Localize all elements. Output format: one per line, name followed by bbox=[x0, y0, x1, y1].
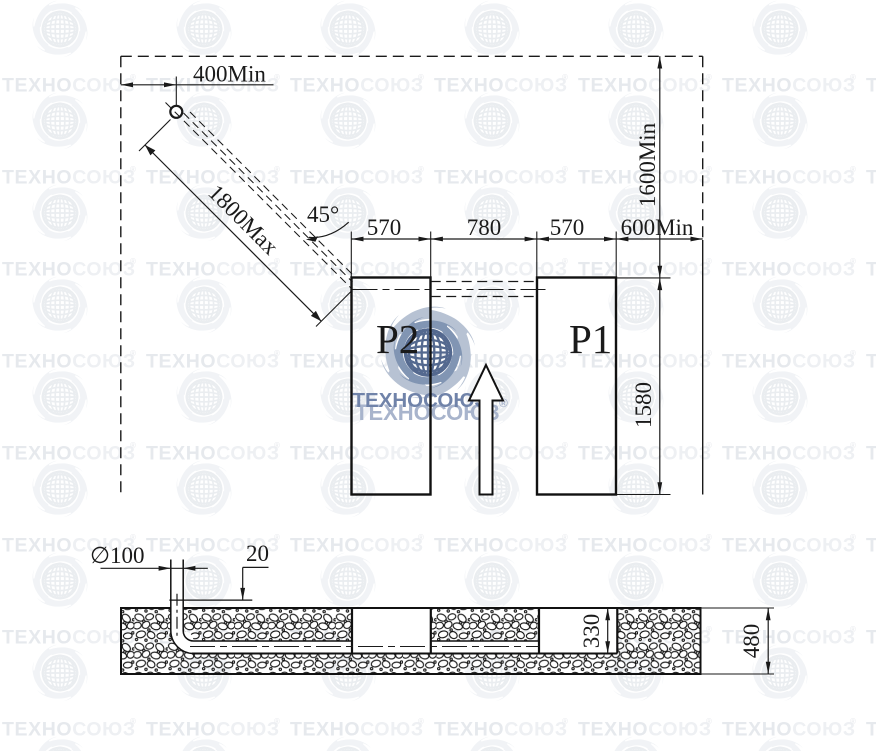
svg-text:570: 570 bbox=[550, 215, 585, 240]
svg-text:330: 330 bbox=[579, 614, 604, 649]
svg-text:1580: 1580 bbox=[631, 382, 656, 428]
svg-text:ТЕХНОСОЮЗ: ТЕХНОСОЮЗ bbox=[353, 389, 488, 412]
svg-text:P1: P1 bbox=[569, 316, 612, 362]
svg-text:480: 480 bbox=[739, 624, 764, 659]
svg-text:400Min: 400Min bbox=[193, 62, 266, 87]
svg-text:45°: 45° bbox=[307, 202, 339, 227]
svg-text:20: 20 bbox=[246, 541, 269, 566]
svg-text:∅100: ∅100 bbox=[90, 543, 145, 568]
svg-text:780: 780 bbox=[467, 215, 502, 240]
svg-text:1600Min: 1600Min bbox=[635, 122, 660, 207]
svg-text:600Min: 600Min bbox=[621, 215, 694, 240]
svg-text:P2: P2 bbox=[376, 316, 419, 362]
svg-text:570: 570 bbox=[367, 215, 402, 240]
